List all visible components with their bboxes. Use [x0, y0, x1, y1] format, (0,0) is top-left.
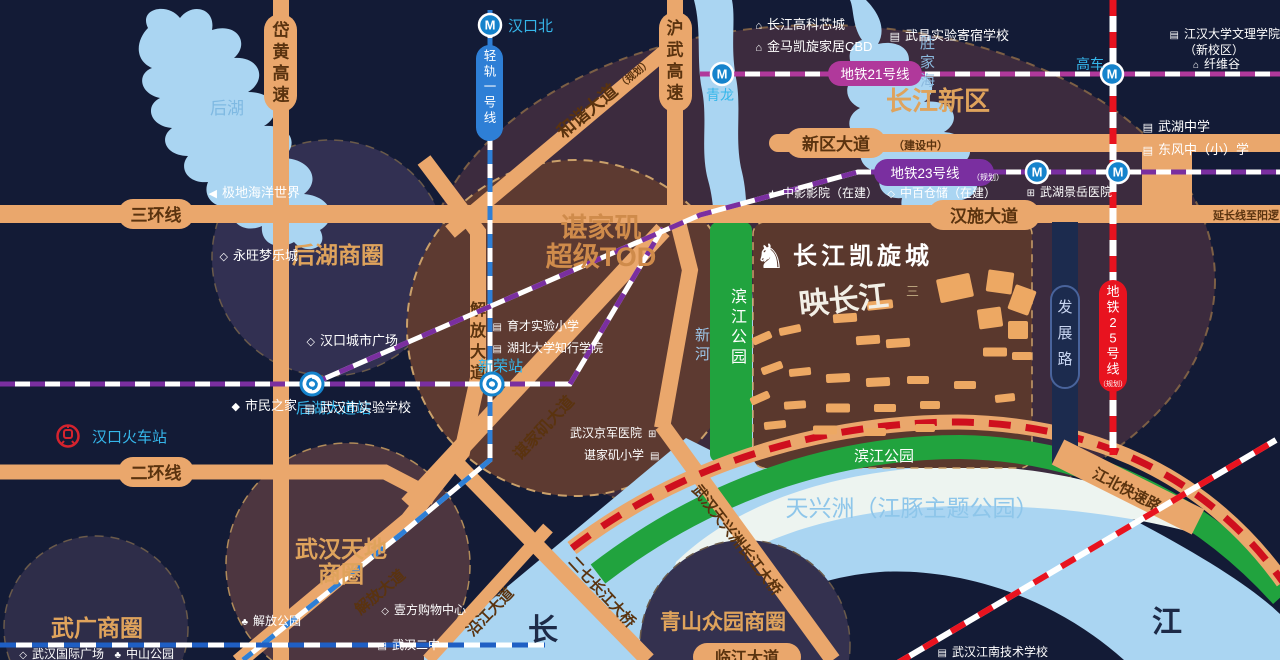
building-footprint: [983, 348, 1007, 357]
station-hankou-railway-label: 汉口火车站: [92, 429, 167, 446]
poi-aeon-mall-icon: ◇: [220, 251, 229, 263]
station-hankoubei-label: 汉口北: [508, 18, 553, 35]
poi-wuhu-middle-school-icon: ▤: [1143, 122, 1153, 134]
building-footprint: [826, 404, 850, 413]
lake-shengjiahai-label: 胜家海: [920, 35, 935, 90]
poi-hubei-univ-zhixing-icon: ▤: [493, 344, 502, 355]
poi-jingjun-hospital: 武汉京军医院: [570, 426, 642, 440]
poi-citizens-home-icon: ◆: [232, 401, 241, 413]
poi-chenjiaji-primary: 谌家矶小学: [584, 447, 644, 462]
building-footprint: [1012, 352, 1032, 360]
station-xinrong-icon: [481, 373, 503, 395]
area-wuhan-tiandi-line1: 武汉天地: [295, 536, 387, 562]
building-footprint: [856, 335, 881, 346]
poi-hankou-city-plaza-icon: ◇: [307, 336, 316, 348]
poi-wuhu-middle-school: 武湖中学: [1158, 119, 1210, 134]
poi-polar-ocean-world-icon: ◀: [209, 188, 218, 200]
svg-text:M: M: [1032, 165, 1043, 180]
poi-wuhan-no2-school-icon: ▤: [378, 641, 387, 652]
m-station-gaoche-icon: M: [1101, 63, 1123, 85]
building-footprint: [784, 400, 807, 410]
road-label-xinqu: 新区大道: [802, 134, 870, 154]
poi-zhongbai-warehouse-icon: ◇: [887, 189, 895, 200]
station-xinrong-label: 新荣站: [478, 358, 523, 375]
project-logo-horse: ♞: [755, 238, 785, 276]
poi-jianghan-univ-line2: （新校区）: [1184, 42, 1244, 57]
lake-houhu-label: 后湖: [210, 99, 244, 118]
poi-fiber-valley-icon: ⌂: [1193, 60, 1199, 71]
poi-wuhu-jingyue-hospital: 武湖景岳医院: [1040, 184, 1112, 199]
poi-changjiang-hitech: 长江高科芯城: [767, 17, 845, 32]
road-label-xinqu-note: （建设中）: [893, 138, 948, 152]
m-station-hankoubei-icon: M: [479, 14, 501, 36]
poi-wuhu-jingyue-hospital-icon: ⊞: [1027, 188, 1035, 199]
building-footprint: [986, 269, 1015, 294]
building-footprint: [866, 377, 890, 387]
metro-label-line23: 地铁23号线: [890, 166, 959, 181]
project-logo-name: 长江凯旋城: [793, 242, 933, 270]
svg-text:M: M: [717, 67, 728, 82]
poi-wuhan-no2-school: 武汉二中: [392, 637, 440, 652]
poi-jinma-cbd-icon: ⌂: [755, 42, 762, 54]
poi-wuhan-intl-plaza-icon: ◇: [19, 650, 27, 660]
poi-fiber-valley: 纤维谷: [1204, 57, 1240, 71]
river-xinhe-label: 新河: [695, 327, 710, 363]
metro-label-line23-note: （规划）: [972, 172, 1004, 182]
poi-hubei-univ-zhixing: 湖北大学知行学院: [507, 340, 603, 355]
poi-jiangnan-tech-school: 武汉江南技术学校: [952, 644, 1048, 659]
map-canvas: 三环线 二环线 岱黄高速 沪武高速 和谐大道 （规划） 新区大道 （建设中） 汉…: [0, 0, 1280, 660]
poi-dongfeng-school-icon: ▤: [1143, 145, 1153, 157]
building-footprint: [874, 404, 896, 412]
svg-text:M: M: [485, 18, 496, 33]
poi-aeon-mall: 永旺梦乐城: [233, 248, 298, 263]
svg-text:M: M: [1107, 67, 1118, 82]
poi-changjiang-hitech-icon: ⌂: [755, 20, 762, 32]
m-station-qinglong-icon: M: [711, 63, 733, 85]
poi-yucai-primary-icon: ▤: [493, 322, 502, 333]
building-footprint: [864, 428, 886, 436]
poi-dongfeng-school: 东风中（小）学: [1158, 142, 1249, 157]
road-label-linjiang: 临江大道: [715, 648, 779, 660]
poi-jiefang-park-icon: ♣: [241, 617, 248, 628]
poi-jianghan-univ-line1: 江汉大学文理学院: [1184, 26, 1280, 41]
poi-yucai-primary: 育才实验小学: [507, 318, 579, 333]
poi-wuhan-experimental-school: 武汉市实验学校: [320, 400, 411, 415]
building-footprint: [826, 373, 850, 383]
building-footprint: [977, 306, 1004, 329]
road-label-hanshi: 汉施大道: [950, 206, 1018, 226]
poi-polar-ocean-world: 极地海洋世界: [222, 185, 300, 200]
poi-zhongshan-park-icon: ♣: [114, 650, 121, 660]
poi-jiefang-park: 解放公园: [253, 613, 301, 628]
building-footprint: [915, 424, 935, 432]
project-logo-seal: 三: [906, 284, 919, 299]
poi-wuchang-boarding-school: 武昌实验寄宿学校: [905, 28, 1009, 43]
area-wuhan-tiandi-line2: 商圈: [318, 561, 364, 587]
building-footprint: [907, 376, 929, 384]
poi-jinma-cbd: 金马凯旋家居CBD: [767, 39, 872, 54]
area-tod-line1: 谌家矶: [561, 212, 642, 243]
building-footprint: [954, 381, 976, 389]
poi-yifang-mall: 壹方购物中心: [394, 602, 466, 617]
poi-cinema-icon: ★: [768, 189, 777, 200]
poi-jianghan-univ-line1-icon: ▤: [1170, 30, 1179, 41]
area-wuguang-cbd: 武广商圈: [51, 615, 143, 641]
building-footprint: [1008, 321, 1028, 339]
poi-zhongshan-park: 中山公园: [126, 646, 174, 660]
building-footprint: [886, 338, 911, 349]
poi-jiangnan-tech-school-icon: ▤: [938, 648, 947, 659]
poi-yifang-mall-icon: ◇: [381, 606, 389, 617]
road-label-sanhuan: 三环线: [131, 205, 182, 225]
poi-chenjiaji-primary-icon: ▤: [650, 451, 659, 462]
poi-wuhan-experimental-school-icon: ▤: [305, 403, 315, 415]
island-tianxingzhou-label: 天兴洲（江豚主题公园）: [786, 495, 1039, 521]
m-station-line23-east-icon: M: [1107, 161, 1129, 183]
poi-wuchang-boarding-school-icon: ▤: [890, 31, 900, 43]
location-map: 三环线 二环线 岱黄高速 沪武高速 和谐大道 （规划） 新区大道 （建设中） 汉…: [0, 0, 1280, 660]
poi-jingjun-hospital-icon: ⊞: [648, 429, 656, 440]
metro-label-line25-note: （规划）: [1099, 379, 1127, 388]
building-footprint: [813, 426, 837, 435]
park-binjiang-arc-label: 滨江公园: [854, 448, 914, 465]
m-station-line23-west-icon: M: [1026, 161, 1048, 183]
poi-cinema: 中影影院（在建）: [782, 185, 878, 200]
road-label-fazhan: 发展路: [1057, 299, 1072, 368]
road-label-yanchang: 延长线至阳逻: [1212, 208, 1280, 222]
poi-citizens-home: 市民之家: [245, 398, 297, 413]
poi-hankou-city-plaza: 汉口城市广场: [320, 333, 398, 348]
poi-wuhan-intl-plaza: 武汉国际广场: [32, 647, 104, 660]
metro-label-line21: 地铁21号线: [840, 67, 909, 82]
area-tod-line2: 超级TOD: [546, 241, 657, 272]
building-footprint: [920, 401, 940, 409]
svg-text:M: M: [1113, 165, 1124, 180]
area-changjiang-new-district: 长江新区: [886, 86, 990, 116]
metro-label-line1: 轻轨一号线: [484, 49, 497, 125]
station-houhudadao-icon: [301, 373, 323, 395]
station-qinglong-label: 青龙: [706, 87, 734, 103]
area-qingshan-cbd: 青山众园商圈: [660, 610, 786, 634]
river-changjiang-char2: 江: [1152, 606, 1182, 639]
poi-zhongbai-warehouse: 中百仓储（在建）: [900, 185, 996, 200]
station-gaoche-label: 高车: [1076, 56, 1104, 72]
river-changjiang-char1: 长: [528, 614, 558, 647]
road-label-erhuan: 二环线: [131, 463, 182, 483]
area-houhu-cbd: 后湖商圈: [292, 242, 384, 268]
